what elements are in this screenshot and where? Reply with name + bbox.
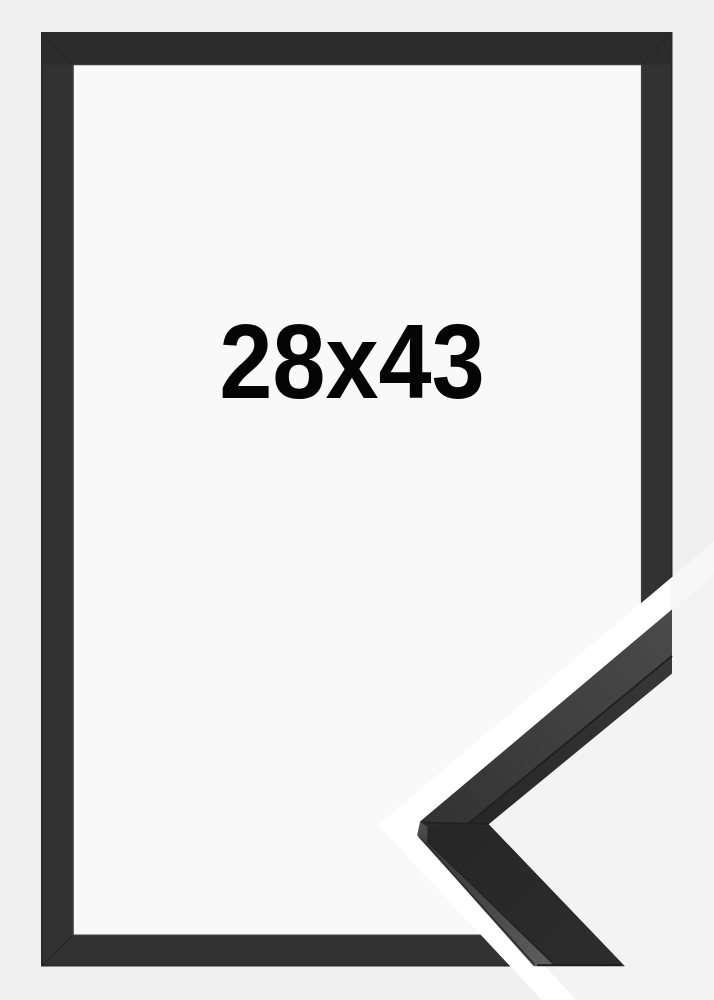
svg-text:28x43: 28x43 [219, 303, 484, 421]
